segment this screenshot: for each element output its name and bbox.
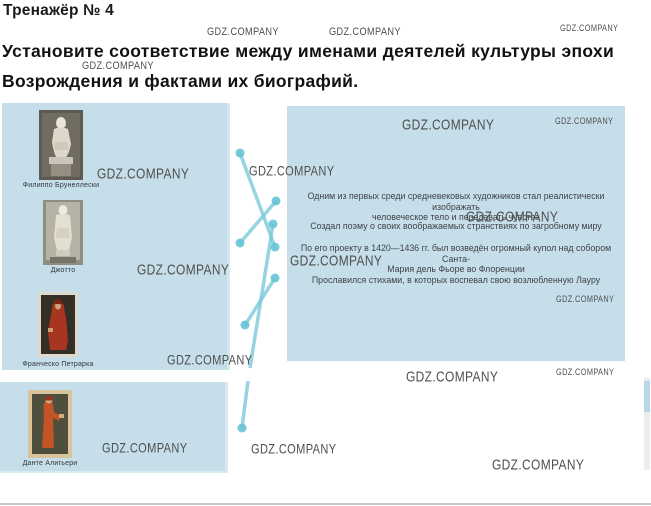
connection-line <box>242 381 248 428</box>
brunelleschi-statue-image <box>39 110 83 180</box>
watermark: GDZ.COMPANY <box>556 367 614 377</box>
watermark: GDZ.COMPANY <box>251 441 336 457</box>
scrollbar-thumb[interactable] <box>644 381 650 412</box>
watermark: GDZ.COMPANY <box>97 165 189 182</box>
person-label-giotto: Джотто <box>23 267 103 274</box>
bottom-divider <box>0 503 651 505</box>
connection-line <box>250 224 273 368</box>
watermark: GDZ.COMPANY <box>492 456 584 473</box>
portrait-dante[interactable] <box>28 390 72 463</box>
watermark: GDZ.COMPANY <box>82 60 154 72</box>
page-title: Тренажёр № 4 <box>3 2 114 20</box>
watermark: GDZ.COMPANY <box>102 440 187 456</box>
watermark: GDZ.COMPANY <box>406 368 498 385</box>
giotto-statue-image <box>43 200 83 265</box>
connection-dot <box>269 220 278 229</box>
watermark: GDZ.COMPANY <box>466 208 558 225</box>
watermark: GDZ.COMPANY <box>555 116 613 126</box>
panel-people: Филиппо Брунеллески Джотто Франческо Пет… <box>2 103 230 370</box>
watermark: GDZ.COMPANY <box>249 163 334 179</box>
watermark: GDZ.COMPANY <box>290 252 382 269</box>
portrait-petrarch[interactable] <box>38 292 78 362</box>
dante-painting-image <box>28 390 72 458</box>
connection-dot <box>272 197 281 206</box>
connection-dot <box>236 149 245 158</box>
person-label-dante: Данте Алигьери <box>5 460 95 467</box>
connection-line <box>240 201 276 243</box>
connection-dot <box>236 239 245 248</box>
watermark: GDZ.COMPANY <box>207 26 279 38</box>
portrait-giotto[interactable] <box>43 200 83 270</box>
connection-line <box>245 278 275 325</box>
portrait-brunelleschi[interactable] <box>39 110 83 185</box>
person-label-petrarch: Франческо Петрарка <box>10 361 106 368</box>
watermark: GDZ.COMPANY <box>167 352 252 368</box>
panel-facts: Одним из первых среди средневековых худо… <box>287 106 625 361</box>
person-label-brunelleschi: Филиппо Брунеллески <box>16 182 106 189</box>
watermark: GDZ.COMPANY <box>560 23 618 33</box>
watermark: GDZ.COMPANY <box>556 294 614 304</box>
watermark: GDZ.COMPANY <box>402 116 494 133</box>
fact-item-2[interactable]: Создал поэму о своих воображаемых странс… <box>291 221 621 232</box>
connection-dot <box>271 274 280 283</box>
fact-item-1[interactable]: Одним из первых среди средневековых худо… <box>291 191 621 223</box>
connection-dot <box>241 321 250 330</box>
watermark: GDZ.COMPANY <box>137 261 229 278</box>
panel-dante: Данте Алигьери <box>0 382 228 473</box>
connection-dot <box>271 243 280 252</box>
petrarch-painting-image <box>38 292 78 357</box>
watermark: GDZ.COMPANY <box>329 26 401 38</box>
fact-item-4[interactable]: Прославился стихами, в которых воспевал … <box>291 275 621 286</box>
connection-dot <box>238 424 247 433</box>
